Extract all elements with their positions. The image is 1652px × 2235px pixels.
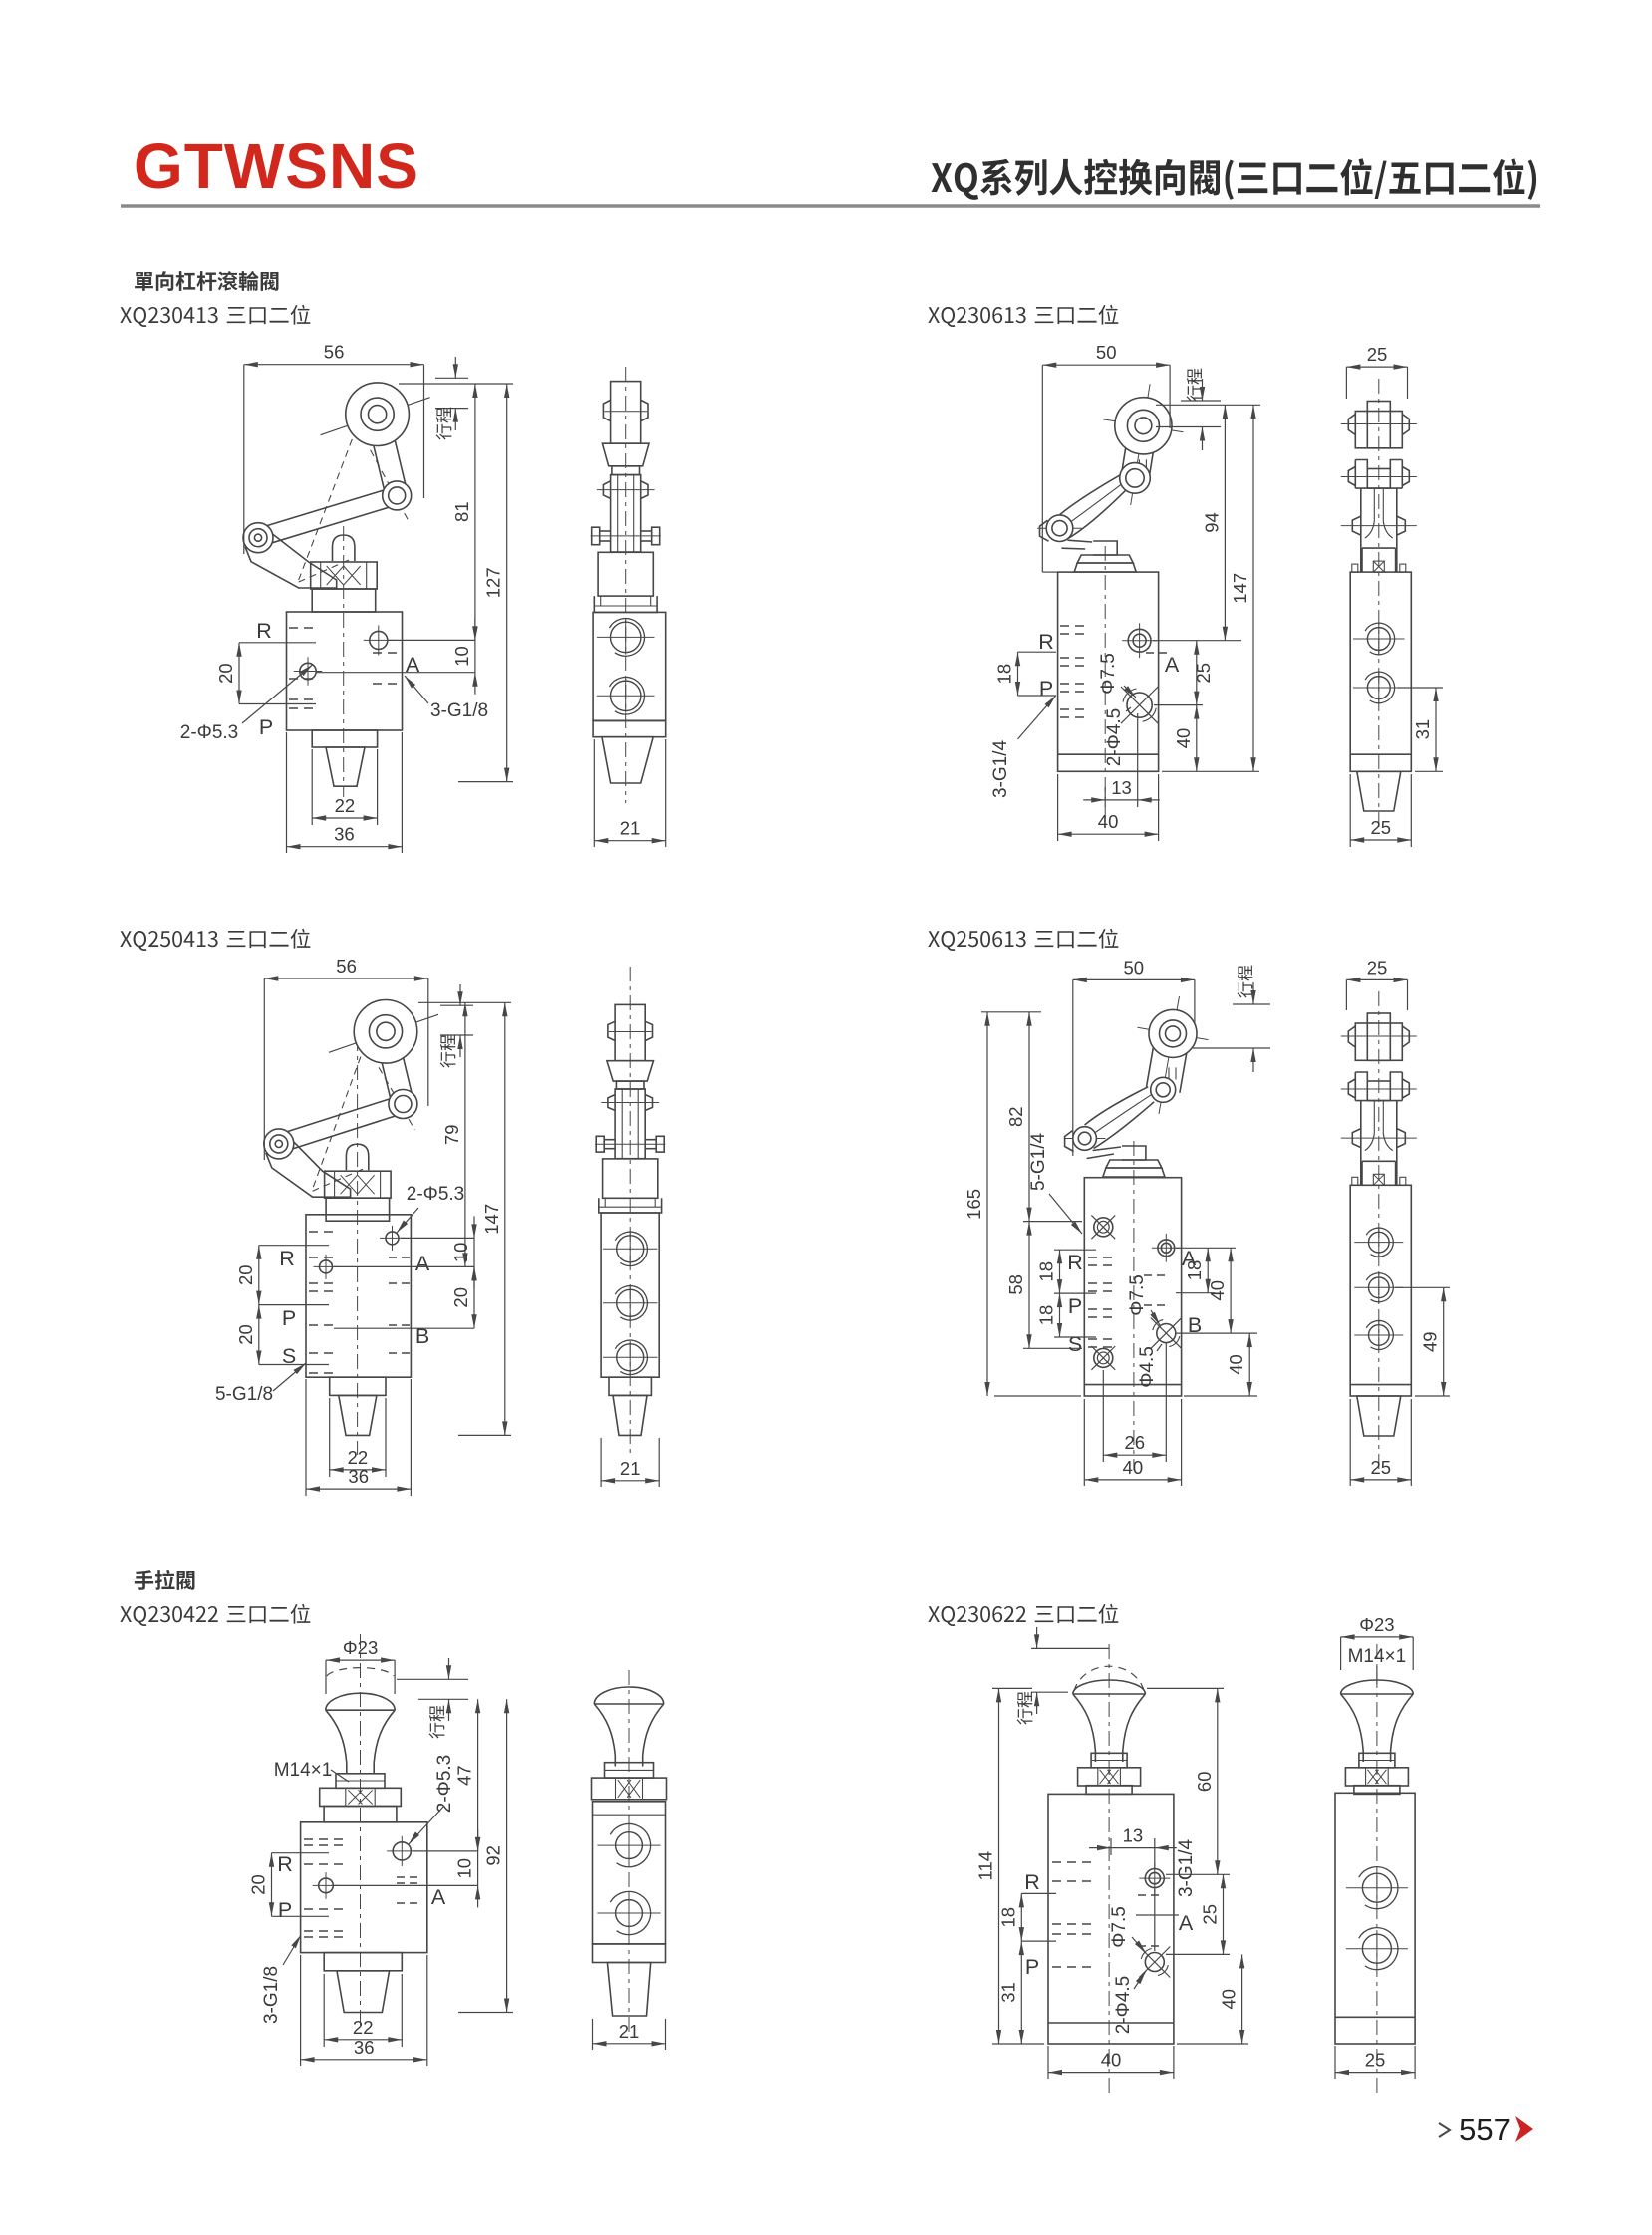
svg-text:21: 21 — [619, 2021, 640, 2042]
svg-text:36: 36 — [348, 1466, 369, 1487]
svg-text:20: 20 — [235, 1264, 256, 1285]
svg-text:50: 50 — [1096, 342, 1117, 363]
svg-text:Φ23: Φ23 — [343, 1637, 378, 1658]
svg-text:2-Φ4.5: 2-Φ4.5 — [1113, 1976, 1134, 2034]
svg-text:10: 10 — [451, 646, 472, 667]
svg-text:40: 40 — [1123, 1457, 1144, 1478]
svg-text:56: 56 — [336, 956, 357, 977]
svg-text:20: 20 — [450, 1287, 471, 1308]
svg-text:P: P — [278, 1898, 292, 1922]
svg-text:40: 40 — [1219, 1989, 1239, 2010]
svg-text:22: 22 — [348, 1447, 369, 1468]
svg-text:40: 40 — [1101, 2050, 1122, 2071]
svg-text:3-G1/4: 3-G1/4 — [1176, 1839, 1197, 1898]
svg-text:5-G1/4: 5-G1/4 — [1028, 1133, 1049, 1192]
svg-text:P: P — [1039, 677, 1053, 700]
svg-text:40: 40 — [1173, 728, 1194, 749]
svg-text:50: 50 — [1124, 957, 1145, 978]
svg-text:94: 94 — [1201, 512, 1222, 533]
svg-text:18: 18 — [1036, 1261, 1057, 1282]
svg-text:P: P — [1068, 1294, 1082, 1318]
svg-text:82: 82 — [1005, 1106, 1026, 1127]
svg-text:165: 165 — [964, 1189, 984, 1220]
svg-text:31: 31 — [1412, 719, 1433, 740]
svg-text:557: 557 — [1459, 2112, 1511, 2147]
svg-text:22: 22 — [335, 795, 356, 816]
svg-text:S: S — [1068, 1332, 1082, 1356]
svg-text:18: 18 — [994, 664, 1015, 685]
svg-text:A: A — [415, 1252, 430, 1275]
svg-text:21: 21 — [620, 1458, 641, 1479]
svg-text:2-Φ5.3: 2-Φ5.3 — [434, 1755, 455, 1813]
svg-text:21: 21 — [620, 818, 641, 839]
svg-text:P: P — [259, 715, 273, 739]
svg-text:40: 40 — [1226, 1354, 1246, 1375]
svg-text:40: 40 — [1098, 811, 1119, 832]
svg-text:25: 25 — [1200, 1904, 1221, 1925]
svg-text:13: 13 — [1123, 1825, 1144, 1846]
svg-text:20: 20 — [215, 663, 236, 684]
svg-text:13: 13 — [1111, 777, 1132, 798]
svg-text:R: R — [1024, 1870, 1040, 1894]
svg-text:25: 25 — [1193, 663, 1214, 684]
svg-text:25: 25 — [1371, 817, 1392, 838]
svg-text:18: 18 — [1036, 1305, 1057, 1326]
svg-text:A: A — [406, 653, 420, 677]
svg-text:25: 25 — [1367, 957, 1388, 978]
svg-text:147: 147 — [481, 1204, 502, 1235]
svg-text:92: 92 — [483, 1845, 504, 1866]
svg-text:5-G1/8: 5-G1/8 — [215, 1384, 273, 1405]
svg-text:A: A — [1179, 1911, 1194, 1935]
svg-text:147: 147 — [1230, 573, 1250, 604]
svg-text:49: 49 — [1420, 1331, 1441, 1352]
svg-text:3-G1/4: 3-G1/4 — [990, 740, 1011, 799]
svg-text:81: 81 — [451, 501, 472, 522]
svg-text:R: R — [256, 619, 272, 643]
svg-text:Φ7.5: Φ7.5 — [1098, 653, 1119, 695]
svg-text:R: R — [279, 1247, 295, 1270]
svg-text:3-G1/8: 3-G1/8 — [261, 1966, 282, 2024]
svg-text:10: 10 — [454, 1858, 475, 1879]
svg-text:GTWSNS: GTWSNS — [134, 131, 419, 202]
svg-text:25: 25 — [1367, 344, 1388, 365]
svg-text:Φ23: Φ23 — [1359, 1614, 1394, 1635]
svg-text:22: 22 — [353, 2017, 374, 2038]
svg-text:79: 79 — [441, 1125, 462, 1146]
svg-text:2-Φ4.5: 2-Φ4.5 — [1104, 708, 1125, 766]
svg-text:36: 36 — [354, 2037, 375, 2058]
svg-text:18: 18 — [1184, 1260, 1205, 1281]
svg-text:56: 56 — [324, 342, 345, 363]
svg-text:A: A — [1165, 653, 1180, 677]
svg-text:Φ4.5: Φ4.5 — [1137, 1346, 1158, 1388]
svg-text:P: P — [1025, 1955, 1039, 1979]
svg-text:10: 10 — [450, 1243, 471, 1263]
svg-text:M14×1: M14×1 — [274, 1760, 333, 1781]
svg-text:2-Φ5.3: 2-Φ5.3 — [407, 1184, 464, 1205]
svg-text:M14×1: M14×1 — [1348, 1646, 1407, 1667]
svg-text:20: 20 — [248, 1874, 269, 1895]
svg-text:A: A — [431, 1885, 446, 1909]
svg-text:47: 47 — [454, 1765, 475, 1786]
svg-text:60: 60 — [1194, 1772, 1215, 1793]
svg-text:58: 58 — [1005, 1274, 1026, 1295]
svg-text:20: 20 — [235, 1324, 256, 1345]
svg-text:P: P — [282, 1306, 296, 1330]
svg-text:25: 25 — [1371, 1457, 1392, 1478]
svg-text:2-Φ5.3: 2-Φ5.3 — [180, 722, 238, 743]
svg-text:40: 40 — [1207, 1280, 1228, 1301]
svg-text:R: R — [277, 1852, 293, 1876]
svg-text:Φ7.5: Φ7.5 — [1109, 1906, 1130, 1948]
svg-text:25: 25 — [1365, 2050, 1386, 2071]
svg-text:114: 114 — [975, 1851, 996, 1881]
svg-text:127: 127 — [483, 567, 504, 598]
svg-text:Φ7.5: Φ7.5 — [1127, 1274, 1148, 1316]
svg-text:26: 26 — [1125, 1432, 1146, 1453]
svg-text:3-G1/8: 3-G1/8 — [430, 700, 488, 721]
svg-text:18: 18 — [997, 1907, 1018, 1928]
svg-text:R: R — [1038, 630, 1054, 654]
svg-text:31: 31 — [997, 1982, 1018, 2003]
svg-text:36: 36 — [334, 824, 355, 845]
svg-text:R: R — [1067, 1251, 1083, 1274]
